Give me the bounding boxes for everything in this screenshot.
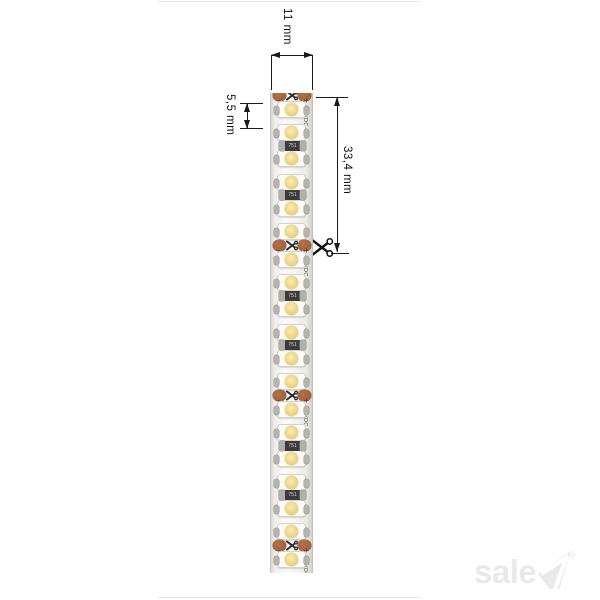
resistor: 751: [279, 141, 306, 151]
led-dome: [285, 253, 298, 266]
resistor: 751: [279, 291, 306, 301]
led-dome: [285, 553, 298, 566]
extension-line: [316, 97, 348, 98]
photo-frame-line-top: [158, 1, 420, 2]
strip-width-label: 11 mm: [281, 8, 293, 45]
led-chip: [277, 124, 306, 141]
arrow-icon: [334, 97, 340, 106]
led-strip: −+24VDC751751−+24VDC751751−+24VDC751751−…: [270, 93, 313, 573]
led-dome: [285, 302, 298, 315]
resistor: 751: [279, 340, 306, 350]
led-chip: [277, 424, 306, 441]
led-chip: [277, 450, 306, 467]
diagram-canvas: 11 mm 5,5 mm 33,4 mm −+24VDC751751−+24VD…: [0, 0, 600, 600]
cut-length-label: 33,4 mm: [341, 146, 353, 194]
cut-mark-icon: [286, 540, 299, 551]
led-chip: [277, 150, 306, 167]
watermark-sale-text: sale: [474, 552, 536, 592]
led-dome: [285, 326, 298, 339]
led-dome: [285, 352, 298, 365]
cut-mark-icon: [286, 240, 299, 251]
led-chip: [277, 500, 306, 517]
resistor: 751: [279, 490, 306, 500]
dimension-line: [337, 97, 338, 252]
watermark: sale ®: [474, 548, 576, 592]
scissors-icon: [309, 236, 336, 259]
led-dome: [285, 225, 298, 238]
led-chip: [277, 200, 306, 217]
resistor: 751: [279, 441, 306, 451]
cut-mark-icon: [286, 93, 299, 101]
resistor: 751: [279, 190, 306, 200]
led-chip: [277, 401, 306, 418]
led-dome: [285, 502, 298, 515]
led-chip: [277, 174, 306, 191]
cut-mark-icon: [286, 390, 299, 401]
led-chip: [277, 324, 306, 341]
led-dome: [285, 103, 298, 116]
led-chip: [277, 551, 306, 568]
extension-line: [271, 55, 272, 90]
led-dome: [285, 403, 298, 416]
led-dome: [285, 375, 298, 388]
led-dome: [285, 476, 298, 489]
brand-seven-logo: [538, 548, 571, 592]
led-chip: [277, 251, 306, 268]
registered-mark: ®: [569, 550, 576, 560]
led-dome: [285, 426, 298, 439]
led-dome: [285, 525, 298, 538]
led-dome: [285, 152, 298, 165]
led-pitch-label: 5,5 mm: [224, 94, 236, 135]
led-chip: [277, 300, 306, 317]
led-dome: [285, 276, 298, 289]
arrow-icon: [271, 52, 280, 58]
arrow-icon: [244, 103, 250, 112]
led-chip: [277, 101, 306, 118]
led-dome: [285, 176, 298, 189]
led-chip: [277, 523, 306, 540]
led-chip: [277, 474, 306, 491]
led-chip: [277, 223, 306, 240]
led-chip: [277, 373, 306, 390]
led-dome: [285, 126, 298, 139]
arrow-icon: [244, 120, 250, 129]
led-dome: [285, 452, 298, 465]
led-chip: [277, 350, 306, 367]
extension-line: [312, 55, 313, 90]
led-dome: [285, 202, 298, 215]
photo-frame-line-bottom: [158, 597, 420, 598]
led-chip: [277, 274, 306, 291]
